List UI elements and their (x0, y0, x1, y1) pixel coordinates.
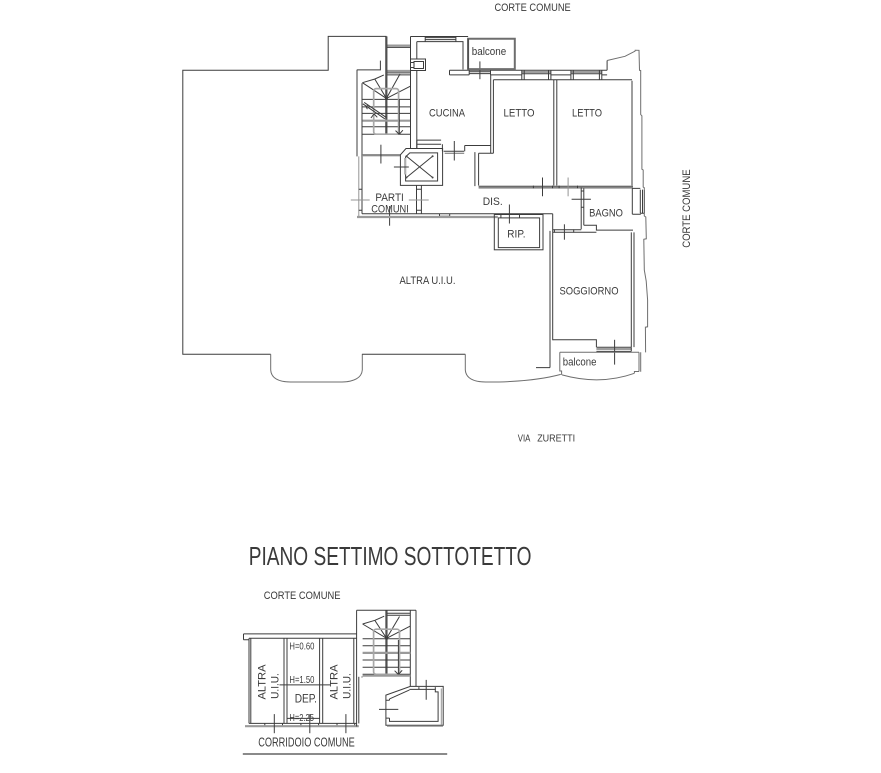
svg-text:SOGGIORNO: SOGGIORNO (560, 285, 619, 297)
svg-text:ZURETTI: ZURETTI (537, 433, 575, 444)
svg-text:U.I.U.: U.I.U. (270, 673, 282, 699)
svg-text:balcone: balcone (472, 46, 507, 58)
svg-text:PIANO SETTIMO SOTTOTETTO: PIANO SETTIMO SOTTOTETTO (249, 541, 532, 571)
svg-text:RIP.: RIP. (507, 229, 525, 241)
svg-text:CORRIDOIO COMUNE: CORRIDOIO COMUNE (258, 734, 355, 749)
svg-text:DEP.: DEP. (295, 694, 317, 706)
svg-text:LETTO: LETTO (572, 108, 602, 120)
svg-text:CORTE COMUNE: CORTE COMUNE (494, 2, 570, 14)
svg-text:VIA: VIA (518, 433, 531, 444)
svg-text:H=1.50: H=1.50 (289, 674, 314, 686)
svg-text:CUCINA: CUCINA (429, 108, 466, 120)
svg-text:PARTI: PARTI (375, 192, 404, 204)
svg-text:ALTRA U.I.U.: ALTRA U.I.U. (400, 275, 456, 287)
svg-text:ALTRA: ALTRA (256, 664, 268, 700)
svg-text:CORTE COMUNE: CORTE COMUNE (681, 169, 693, 247)
svg-text:H=0.60: H=0.60 (289, 641, 314, 653)
svg-text:BAGNO: BAGNO (589, 208, 623, 220)
svg-text:ALTRA: ALTRA (328, 664, 340, 700)
svg-text:balcone: balcone (563, 357, 597, 369)
svg-text:U.I.U.: U.I.U. (342, 673, 354, 699)
svg-text:CORTE COMUNE: CORTE COMUNE (264, 590, 341, 602)
svg-text:LETTO: LETTO (504, 108, 535, 120)
svg-text:H=2.25: H=2.25 (289, 712, 314, 724)
svg-text:DIS.: DIS. (483, 196, 503, 208)
